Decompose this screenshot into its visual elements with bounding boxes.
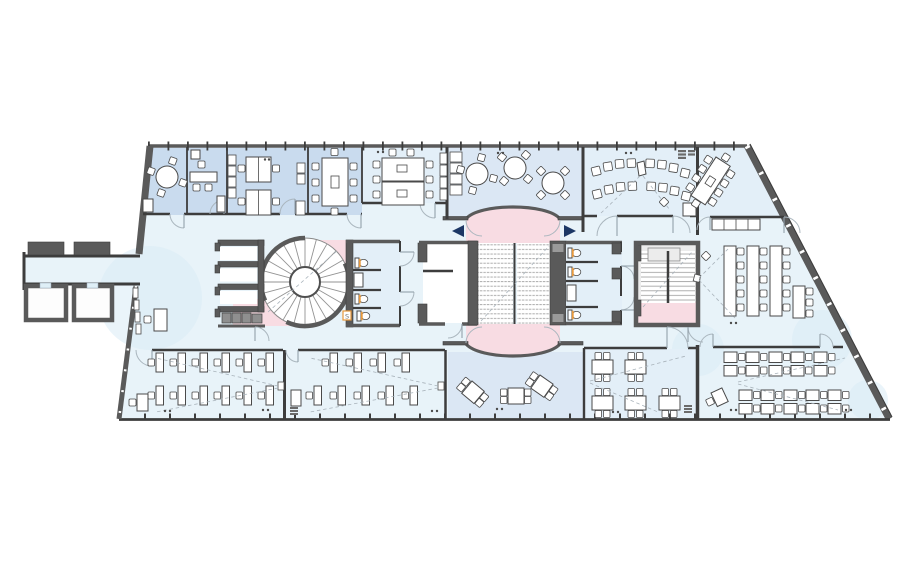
secondary-stair-landing xyxy=(638,302,697,323)
floor-plan-canvas: S xyxy=(0,0,919,568)
locker-block xyxy=(222,313,231,323)
reception-desk xyxy=(154,309,167,331)
sink-icon xyxy=(567,285,576,301)
sink-icon xyxy=(354,273,363,287)
secondary-stair-core xyxy=(636,243,711,342)
spiral-core-niches xyxy=(215,240,264,323)
main-stair-flight-west xyxy=(478,243,513,324)
teacher-desk xyxy=(291,390,301,406)
urinal-label: S xyxy=(345,313,349,321)
teacher-desk xyxy=(137,394,148,411)
main-stair-flight-east xyxy=(517,243,552,324)
floor-plan-page: S xyxy=(0,0,919,568)
lectern xyxy=(637,161,646,176)
store-room-1 xyxy=(26,286,66,320)
store-room-2 xyxy=(74,286,112,320)
